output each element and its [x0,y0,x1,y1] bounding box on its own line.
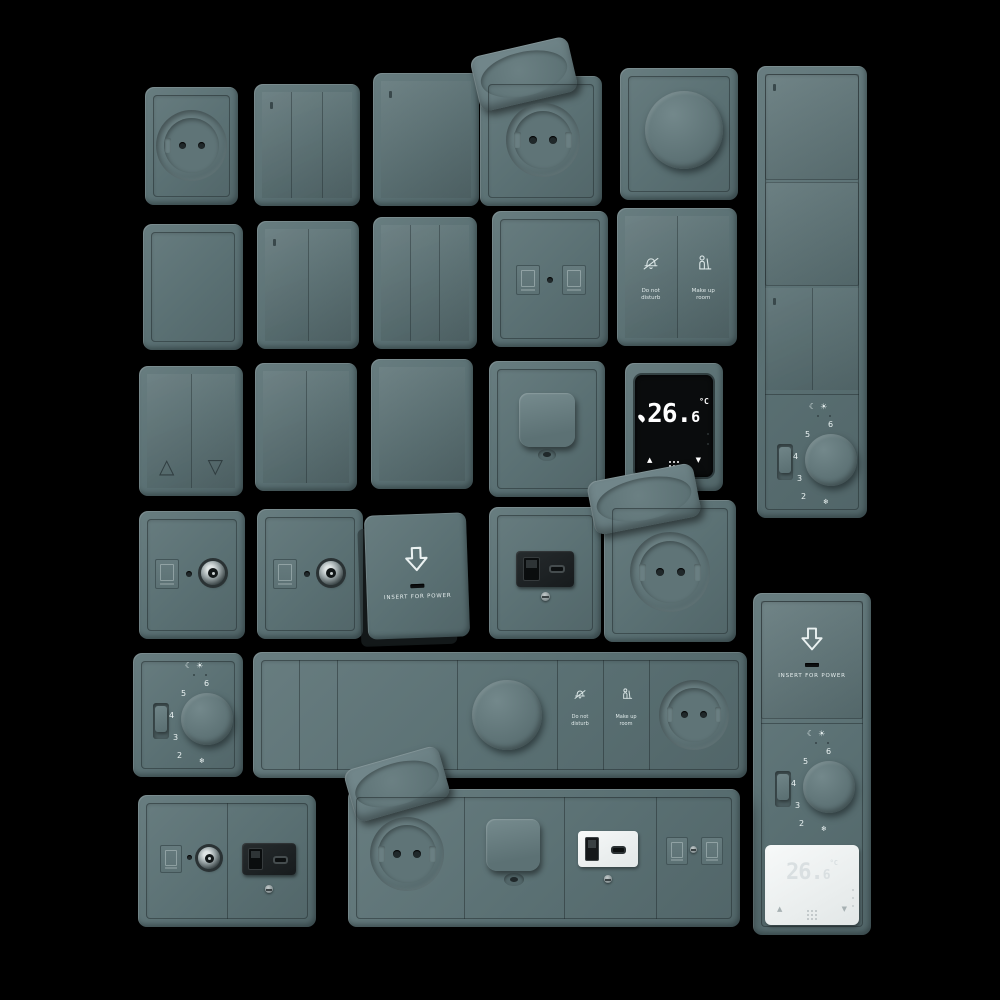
switch-rocker[interactable] [292,92,322,198]
socket-clip [694,564,701,581]
port-base [165,867,177,869]
center-hole [186,571,192,577]
temp-unit: °C [699,397,709,406]
dial-number: 2 [799,819,804,828]
rocker-group: Do notdisturb Make uproom [625,216,729,338]
key-card-section: INSERT FOR POWER [761,601,863,719]
switch-rocker[interactable] [263,371,307,483]
data-port [516,265,540,295]
divider [649,660,650,770]
toggle-slot [153,703,169,739]
shutter-switch-plate: △ ▽ [139,366,243,496]
divider [765,394,859,395]
analog-thermostat-plate: ☾☀ 6 5 4 3 2 ❄ [133,653,243,777]
hotel-service-switch-plate: Do notdisturb Make uproom [617,208,737,346]
dial-number: 2 [801,492,806,501]
port-base [278,583,292,585]
screw [541,592,550,601]
scene: ☾☀ 6 5 4 3 2 ❄ [0,0,1000,1000]
key-card-switch-plate: INSERT FOR POWER [364,512,470,639]
sensor-dot [707,443,709,445]
port-icon [671,842,683,858]
port-icon [278,564,292,581]
dial-number: 3 [797,474,802,483]
temp-down-button[interactable]: ▼ [842,905,847,913]
coax-connector [198,847,220,869]
day-mode-icon: ☀ [818,729,829,738]
switch-rocker[interactable] [765,182,859,286]
data-port [155,559,179,589]
switch-1-gang-plate [371,359,473,489]
usb-c-port[interactable] [273,856,288,864]
cable-outlet-nub [504,873,524,886]
thermostat-knob[interactable] [181,693,233,745]
port-icon [567,270,581,287]
port-base [160,583,174,585]
shutter-down-rocker[interactable]: ▽ [192,374,236,488]
center-hole [547,277,553,283]
usb-c-port[interactable] [611,846,626,854]
port-icon [706,842,718,858]
night-mode-icon: ☾ [809,402,820,411]
rocker-group [265,229,351,341]
socket-clip [565,132,572,148]
cable-outlet-spout [519,393,575,447]
center-hole [187,855,192,860]
switch-rocker[interactable] [381,81,471,198]
dial-number: 6 [828,420,833,429]
rocker-group [381,225,469,341]
thermostat-knob[interactable] [803,761,855,813]
coax-pin [208,857,211,860]
socket-hole [700,711,707,718]
port-icon [165,850,177,866]
switch-rocker[interactable] [323,92,352,198]
center-hole [304,571,310,577]
heating-icon [637,413,646,422]
socket-inner [514,111,572,169]
night-mode-icon: ☾ [807,729,818,738]
shutter-up-rocker[interactable]: △ [147,374,192,488]
socket-hole [677,568,685,576]
sensor-dot [852,905,854,907]
switch-rocker[interactable] [381,225,411,341]
shutter-down-icon: ▽ [208,456,223,476]
switch-rocker[interactable] [765,74,859,180]
cable-hole [510,877,518,882]
rocker-group [263,371,349,483]
usb-module [516,551,574,587]
socket-recess [156,110,227,181]
data-port [701,837,723,865]
socket-inner [164,118,219,173]
dial-number: 4 [793,452,798,461]
thermostat-dial-section: ☾☀ 6 5 4 3 2 ❄ [141,659,235,771]
socket-clip [429,846,436,862]
switch-rocker[interactable] [765,288,813,390]
power-socket [370,817,444,891]
rocker-group [379,367,465,481]
screw [604,875,612,883]
usb-a-tab [526,560,537,568]
socket-hole [656,568,664,576]
coax-pin [212,572,215,575]
mode-icons: ☾☀ [809,402,831,411]
insert-for-power-label: INSERT FOR POWER [367,592,469,602]
usb-a-port[interactable] [248,848,263,870]
dial-number: 5 [805,430,810,439]
switch-rocker[interactable] [411,225,441,341]
dial-number: 3 [795,801,800,810]
temp-value: 26. [786,860,823,885]
indicator-dot [273,239,276,246]
switch-rocker[interactable] [813,288,860,390]
screw [690,846,697,853]
menu-grid-icon[interactable] [807,910,809,912]
socket-clip [639,564,646,581]
socket-hole [549,136,557,144]
mode-icons: ☾☀ [807,729,829,738]
socket-hole [529,136,537,144]
usb-socket-black-plate [489,507,601,639]
frost-icon: ❄ [199,757,205,765]
temp-decimal: 6 [823,868,830,883]
socket-clip [165,138,171,153]
divider [656,797,657,919]
port-icon [521,270,535,287]
port-base [706,859,718,861]
switch-rocker[interactable] [309,229,352,341]
indicator-dot [389,91,392,98]
dimmer-knob[interactable] [472,680,542,750]
rocker-group [381,81,471,198]
power-socket [506,103,580,177]
coax-hole [205,854,214,863]
cable-hole [543,452,550,457]
card-slot[interactable] [410,584,424,588]
screw [265,885,273,893]
dimmer-plate [620,68,738,200]
dial-number: 3 [173,733,178,742]
switch-1-gang-plate [373,73,479,206]
port-base [671,859,683,861]
thermostat-knob[interactable] [805,434,857,486]
port-base [521,289,535,291]
sensor-dot [852,889,854,891]
switch-rocker[interactable] [379,367,465,481]
day-mode-icon: ☀ [820,402,831,411]
switch-2-gang-plate [255,363,357,491]
day-mode-icon: ☀ [196,661,207,670]
card-slot[interactable] [805,663,819,667]
sensor-dot [707,433,709,435]
switch-rocker[interactable] [307,371,350,483]
make-up-room-label: Make uproom [678,288,730,301]
coax-hole [208,568,218,578]
mode-indicator-dots [815,742,817,744]
coax-connector [201,561,225,585]
usb-a-port[interactable] [523,557,540,581]
thermostat-screen: 26.6°C ▲ ▼ [635,375,713,477]
cable-outlet-nub [538,449,556,461]
do-not-disturb-icon [572,686,588,702]
combo-tv-usb-plate [138,795,316,927]
make-up-room-icon [618,686,634,702]
dimmer-knob[interactable] [645,91,723,169]
dial-number: 6 [204,679,209,688]
switch-3-gang-plate [373,217,477,349]
insert-for-power-label: INSERT FOR POWER [761,673,863,679]
socket-hole [179,142,186,149]
menu-grid-icon[interactable] [669,461,671,463]
usb-a-tab [588,840,596,848]
vertical-multi-frame-2: INSERT FOR POWER ☾☀ 6 5 4 3 2 ❄ 26.6°C ▲… [753,593,871,935]
socket-hole [393,850,401,858]
card-arrow-icon [796,623,828,655]
make-up-room-rocker[interactable]: Make uproom [678,216,730,338]
switch-3-gang-plate [254,84,360,206]
vertical-multi-frame-1: ☾☀ 6 5 4 3 2 ❄ [757,66,867,518]
socket-clip [514,132,521,148]
do-not-disturb-rocker[interactable]: Do notdisturb [625,216,678,338]
divider [564,797,565,919]
rocker-group [262,92,352,198]
horizontal-multi-frame-1: Do notdisturb Make uproom [253,652,747,778]
temp-down-button[interactable]: ▼ [696,456,701,464]
blank-plate [143,224,243,350]
data-port [666,837,688,865]
frost-icon: ❄ [823,498,829,506]
tv-coax-socket-plate [257,509,363,639]
rocker-group: △ ▽ [147,374,235,488]
frost-icon: ❄ [821,825,827,833]
divider [464,797,465,919]
usb-a-port[interactable] [585,837,599,861]
make-up-room-icon [692,252,714,274]
power-socket [659,680,729,750]
toggle-lever[interactable] [777,774,789,800]
socket-hole [198,142,205,149]
data-port [562,265,586,295]
do-not-disturb-label: Do notdisturb [625,288,677,301]
thermostat-dial-section: ☾☀ 6 5 4 3 2 ❄ [763,727,857,839]
shutter-up-icon: △ [159,456,174,476]
thermostat-dial-section: ☾☀ 6 5 4 3 2 ❄ [765,400,859,512]
divider [761,723,863,724]
indicator-dot [773,298,776,305]
socket-inner [378,825,436,883]
temp-up-button[interactable]: ▲ [777,905,782,913]
temperature-display: 26.6°C [765,859,859,885]
indicator-dot [773,84,776,91]
switch-rocker[interactable] [265,229,309,341]
toggle-slot [775,771,791,807]
coax-pin [330,572,333,575]
socket-clip [667,707,673,722]
switch-rocker[interactable] [262,92,292,198]
socket-hole [413,850,421,858]
temp-value: 26. [647,399,691,429]
temp-decimal: 6 [691,408,699,426]
divider [227,803,228,919]
digital-thermostat-white: 26.6°C ▲ ▼ [765,845,859,925]
coax-hole [326,568,336,578]
data-socket-plate [492,211,608,347]
horizontal-multi-frame-2 [348,789,740,927]
rocker-pair [765,288,859,390]
usb-a-tab [251,851,260,858]
socket-clip [715,707,721,722]
toggle-slot [777,444,793,480]
card-arrow-icon [399,541,434,576]
temp-up-button[interactable]: ▲ [647,456,652,464]
usb-c-port[interactable] [549,565,565,573]
dial-number: 5 [803,757,808,766]
port-icon [160,564,174,581]
toggle-lever[interactable] [155,706,167,732]
usb-module [242,843,296,875]
divider [457,660,458,770]
socket-inner [639,541,701,603]
tv-coax-socket-plate [139,511,245,639]
night-mode-icon: ☾ [185,661,196,670]
round-pin-socket-plate [145,87,238,205]
dial-number: 4 [791,779,796,788]
mode-indicator-dots [193,674,195,676]
cable-outlet-spout [486,819,540,871]
usb-module-white [578,831,638,867]
socket-hole [681,711,688,718]
lid-socket-plate [480,76,602,206]
divider [337,660,338,770]
dial-number: 4 [169,711,174,720]
socket-clip [378,846,385,862]
port-base [567,289,581,291]
temperature-display: 26.6°C [635,397,713,429]
coax-connector [319,561,343,585]
dial-number: 6 [826,747,831,756]
divider [299,660,300,770]
switch-rocker[interactable] [440,225,469,341]
plate-face [151,232,235,342]
power-socket [630,532,710,612]
mode-indicator-dots [817,415,819,417]
do-not-disturb-label[interactable]: Do notdisturb [557,714,603,727]
switch-2-gang-plate [257,221,359,349]
indicator-dot [270,102,273,109]
socket-inner [667,688,721,742]
data-port [160,845,182,873]
do-not-disturb-icon [640,252,662,274]
make-up-room-label[interactable]: Make uproom [603,714,649,727]
lid-socket-plate [604,500,736,642]
cable-outlet-plate [489,361,605,497]
data-port [273,559,297,589]
toggle-lever[interactable] [779,447,791,473]
mode-icons: ☾☀ [185,661,207,670]
sensor-dot [852,897,854,899]
dial-number: 5 [181,689,186,698]
dial-number: 2 [177,751,182,760]
temp-unit: °C [830,859,838,867]
